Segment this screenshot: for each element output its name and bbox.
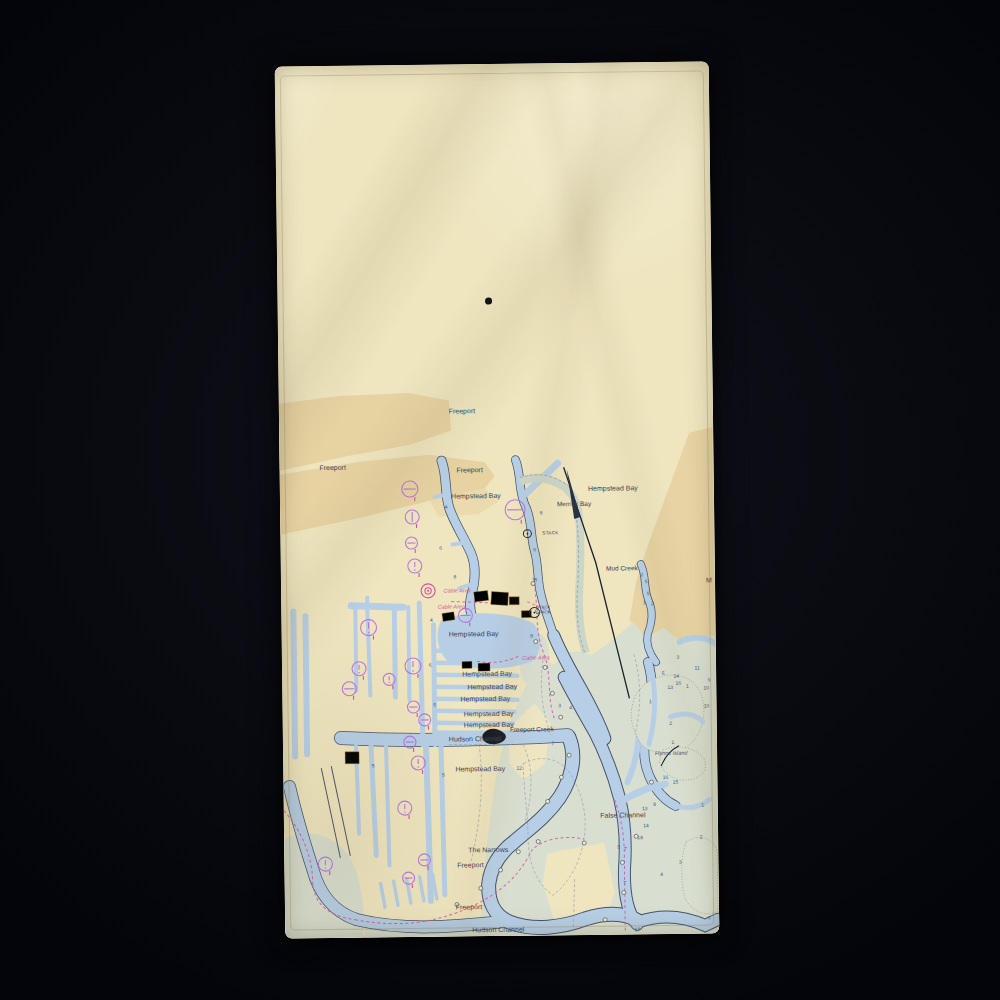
depth-number: 4 — [430, 617, 433, 623]
depth-number: 1 — [643, 599, 646, 605]
place-label: STACK — [542, 530, 558, 535]
place-label: Cable Area — [438, 603, 465, 609]
depth-number: 4 — [569, 704, 572, 710]
place-label: STACK — [536, 609, 551, 614]
place-label: Flynns Island — [655, 750, 688, 756]
buoy-marker — [559, 775, 563, 779]
product-photo-stage: 4688658255123514161311110910121743161513… — [0, 0, 1000, 1000]
place-label: Cable Area — [443, 587, 470, 593]
depth-number: 3 — [677, 654, 680, 660]
place-label: Cable Area — [522, 654, 549, 660]
buoy-marker — [516, 850, 520, 854]
depth-number: 8 — [540, 509, 543, 515]
depth-number: 4 — [660, 871, 663, 877]
depth-number: 17 — [634, 926, 640, 932]
depth-number: 5 — [442, 772, 445, 778]
depth-number: 5 — [645, 578, 648, 584]
depth-number: 3 — [679, 859, 682, 865]
depth-number: 9 — [708, 676, 711, 682]
depth-number: 3 — [617, 844, 620, 850]
buoy-marker — [582, 841, 586, 845]
depth-number: 1 — [649, 698, 652, 704]
depth-number: 10 — [704, 702, 710, 708]
depth-number: 2 — [700, 834, 703, 840]
buoy-marker — [534, 640, 538, 644]
depth-number: 8 — [454, 574, 457, 580]
depth-number: 2 — [669, 720, 672, 726]
buoy-marker — [546, 799, 550, 803]
buoy-marker — [649, 780, 653, 784]
depth-number: 12 — [516, 765, 522, 771]
depth-number: 2 — [651, 600, 654, 606]
depth-number: 5 — [535, 577, 538, 583]
buoy-marker — [550, 691, 554, 695]
depth-number: 16 — [675, 680, 681, 686]
buoy-marker — [622, 890, 626, 894]
depth-number: 1 — [686, 683, 689, 689]
depth-number: 7 — [624, 845, 627, 851]
place-label: False Channel — [600, 811, 646, 819]
buoy-marker — [479, 886, 483, 890]
depth-number: 6 — [708, 914, 711, 920]
depth-number: 14 — [673, 673, 679, 679]
depth-number: 16 — [663, 774, 669, 780]
depth-number: 11 — [694, 665, 699, 671]
depth-number: 10 — [703, 684, 709, 690]
place-label: Mud Creek — [606, 564, 639, 571]
depth-number: 14 — [643, 822, 649, 828]
place-label: Hudson Channel — [472, 926, 525, 934]
depth-number: 13 — [667, 684, 673, 690]
depth-number: 8 — [530, 633, 533, 639]
depth-number: 7 — [552, 740, 555, 746]
buoy-marker — [543, 665, 547, 669]
place-label: Hudson Channel — [449, 735, 502, 743]
depth-number: 3 — [558, 702, 561, 708]
depth-number: 5 — [647, 590, 650, 596]
buoy-marker — [620, 860, 624, 864]
depth-number: 6 — [429, 662, 432, 668]
depth-number: 1 — [672, 739, 675, 745]
buoy-marker — [498, 868, 502, 872]
depth-number: 1 — [701, 801, 704, 807]
place-label: M — [706, 576, 712, 583]
buoy-marker — [536, 839, 540, 843]
depth-number: 5 — [433, 702, 436, 708]
buoy-marker — [603, 918, 607, 922]
depth-number: 2 — [640, 571, 643, 577]
depth-number: 7 — [623, 879, 626, 885]
nautical-chart-print: 4688658255123514161311110910121743161513… — [275, 61, 720, 938]
depth-number: 15 — [673, 779, 679, 785]
depth-number: 6 — [439, 545, 442, 551]
depth-number: 5 — [662, 670, 665, 676]
depth-number: 6 — [533, 547, 536, 553]
buoy-marker — [559, 715, 563, 719]
depth-number: 8 — [653, 801, 656, 807]
place-label: The Narrows — [468, 846, 509, 853]
depth-number: 18 — [637, 834, 643, 840]
beach-towel: 4688658255123514161311110910121743161513… — [275, 61, 720, 938]
depth-number: 5 — [372, 763, 375, 769]
buoy-marker — [567, 753, 571, 757]
depth-number: 4 — [445, 504, 448, 510]
